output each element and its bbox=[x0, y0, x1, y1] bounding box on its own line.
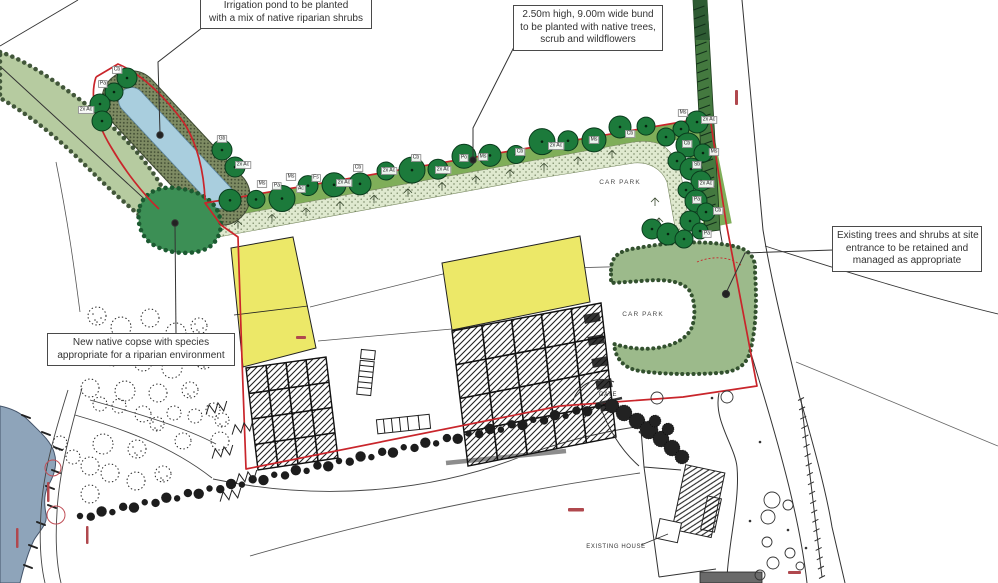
callout-line: entrance to be retained and bbox=[837, 243, 977, 256]
car-park-upper-label: CAR PARK bbox=[599, 179, 641, 186]
outbuilding-bottom bbox=[700, 572, 762, 583]
gate-label: GATE bbox=[599, 392, 617, 398]
callout-irrigation-pond: Irrigation pond to be planted with a mix… bbox=[200, 0, 372, 29]
callout-line: Existing trees and shrubs at site bbox=[837, 230, 977, 243]
callout-line: Irrigation pond to be planted bbox=[205, 0, 367, 13]
callout-line: 2.50m high, 9.00m wide bund bbox=[518, 9, 658, 22]
site-plan-page: CAR PARK CAR PARK GATE EXISTING HOUSE Cb… bbox=[0, 0, 998, 583]
callout-line: with a mix of native riparian shrubs bbox=[205, 13, 367, 26]
callout-copse: New native copse with species appropriat… bbox=[47, 333, 235, 366]
callout-bund: 2.50m high, 9.00m wide bund to be plante… bbox=[513, 5, 663, 51]
proposed-building-west bbox=[231, 237, 316, 367]
callout-line: New native copse with species bbox=[52, 337, 230, 350]
callout-line: to be planted with native trees, bbox=[518, 22, 658, 35]
existing-barn-east bbox=[452, 303, 617, 466]
existing-house bbox=[656, 462, 727, 550]
callout-line: managed as appropriate bbox=[837, 255, 977, 268]
callout-line: appropriate for a riparian environment bbox=[52, 350, 230, 363]
existing-house-label: EXISTING HOUSE bbox=[586, 544, 645, 550]
callout-line: scrub and wildflowers bbox=[518, 34, 658, 47]
lorry-vertical bbox=[357, 349, 376, 395]
site-plan-svg: CAR PARK CAR PARK GATE EXISTING HOUSE bbox=[0, 0, 998, 583]
car-park-lower-label: CAR PARK bbox=[622, 311, 664, 318]
lorry-horizontal bbox=[376, 414, 430, 433]
callout-existing-trees: Existing trees and shrubs at site entran… bbox=[832, 226, 982, 272]
